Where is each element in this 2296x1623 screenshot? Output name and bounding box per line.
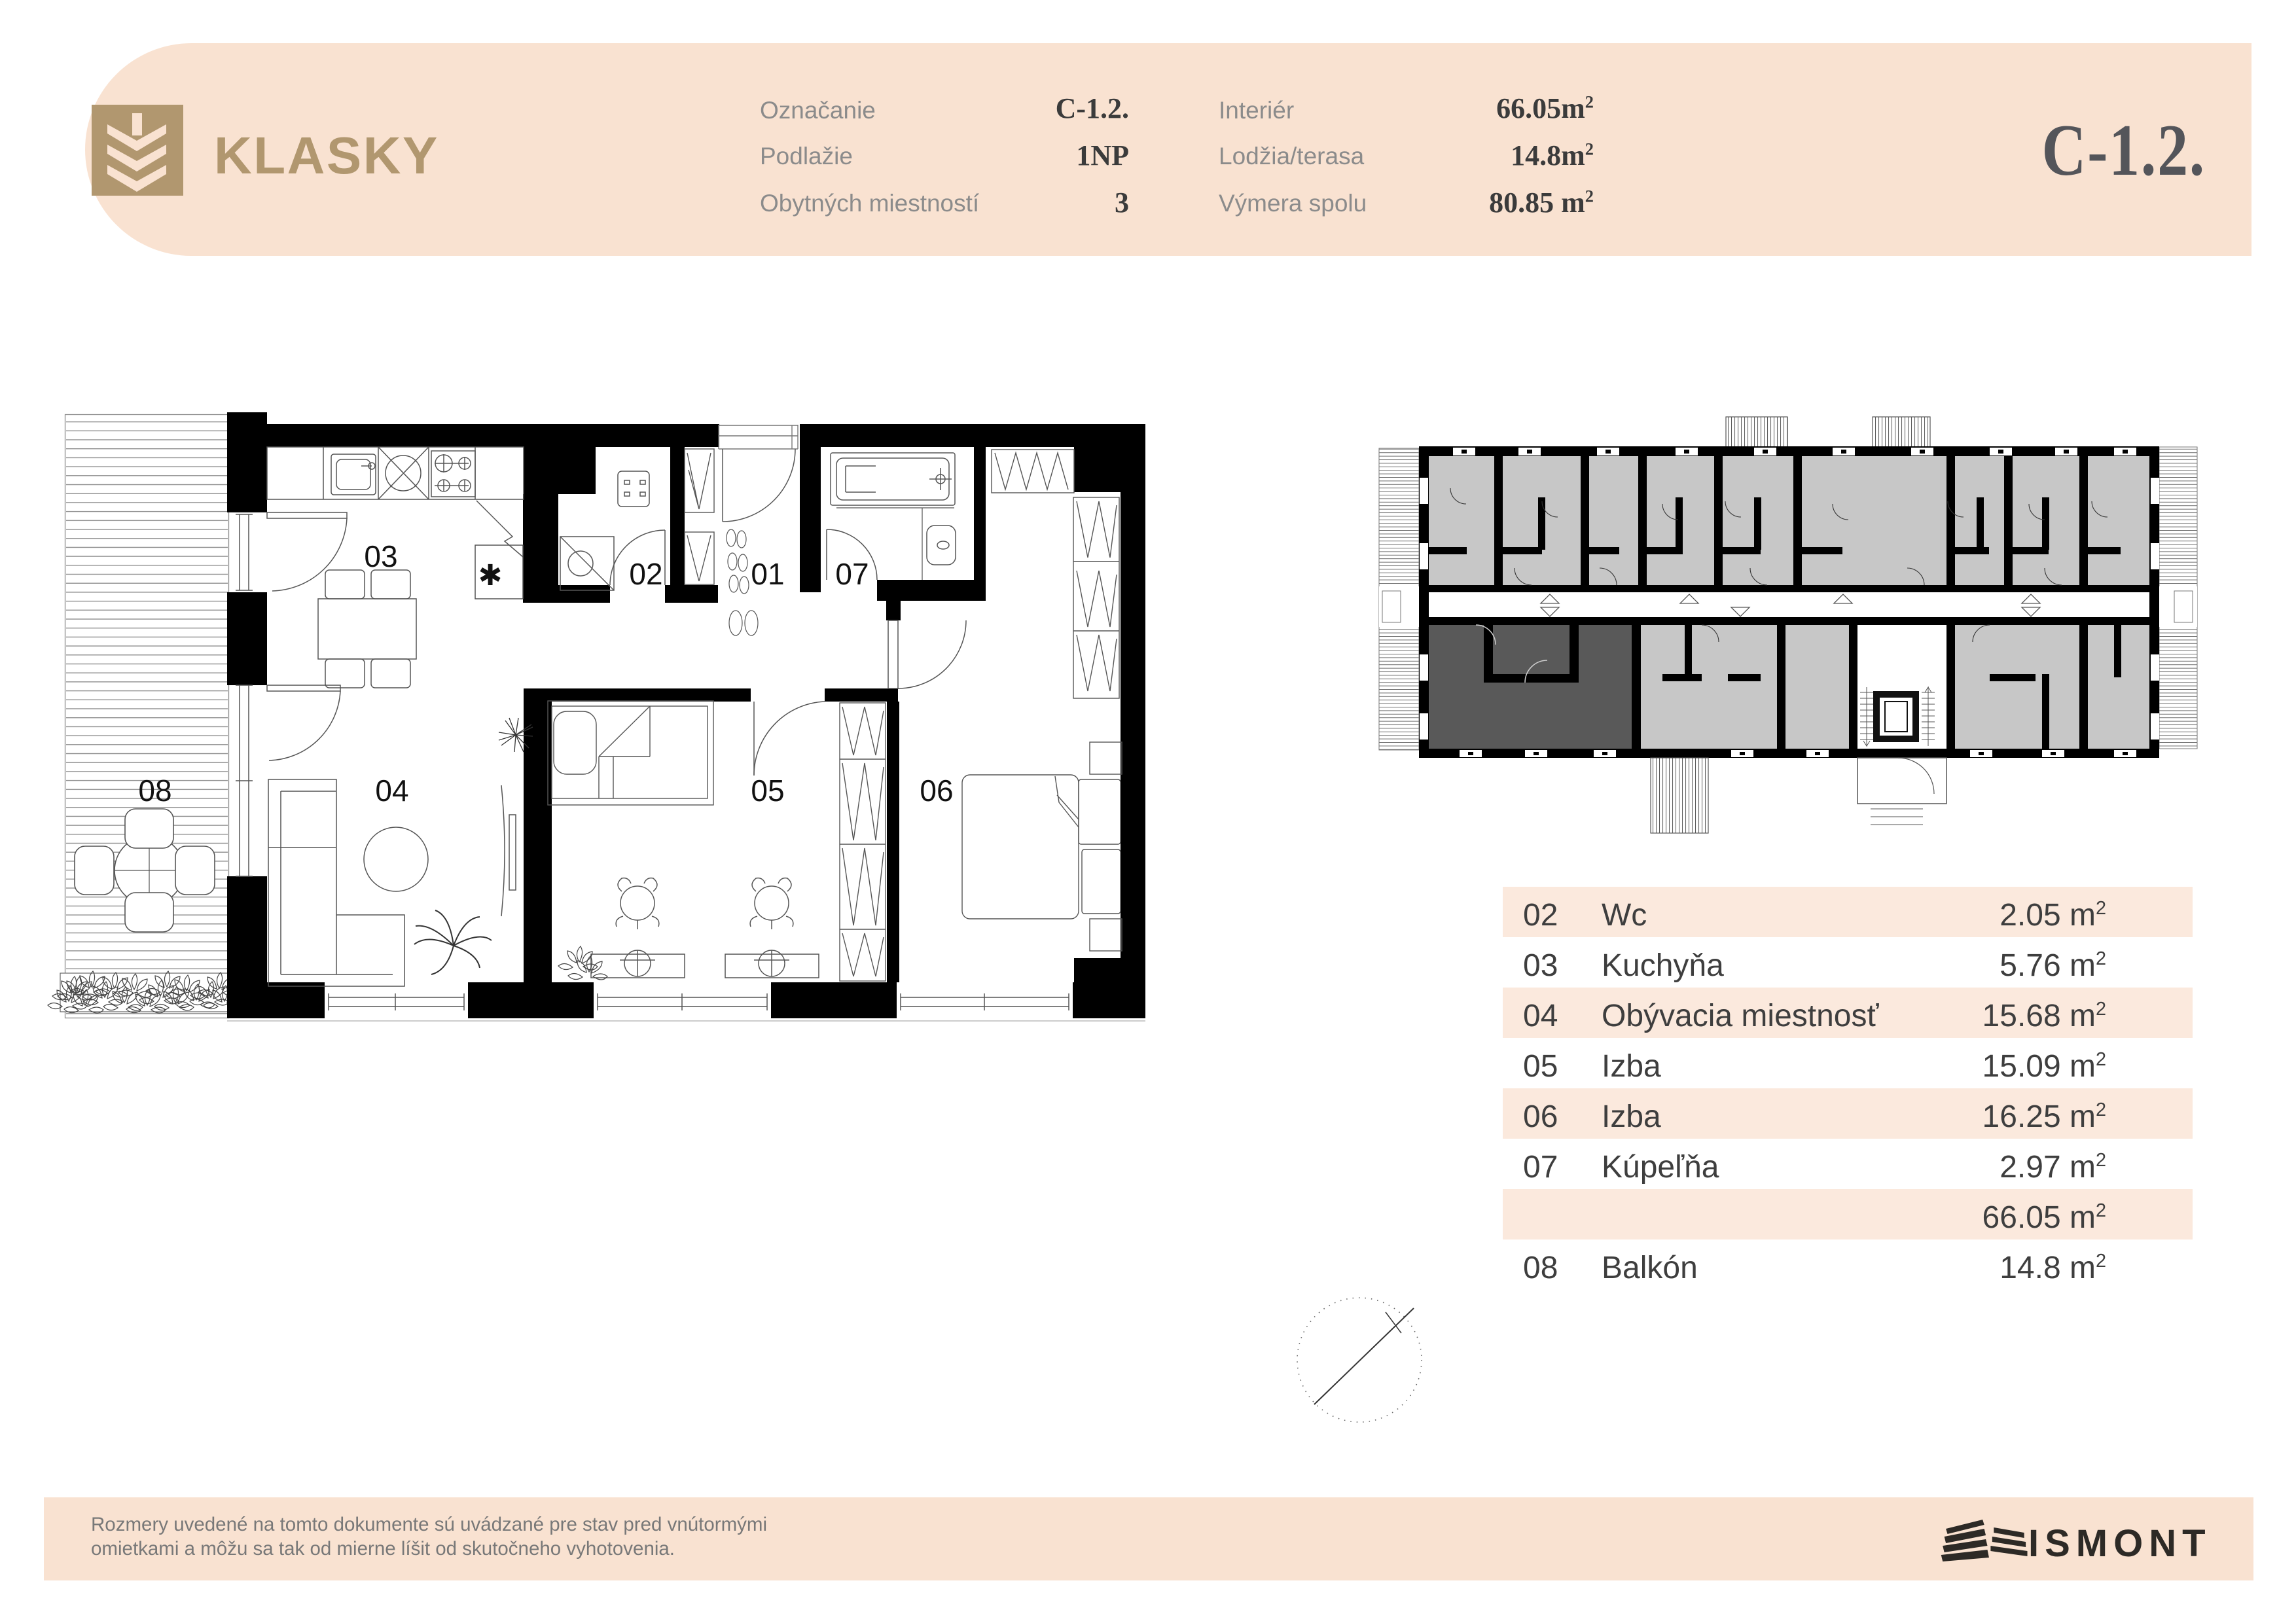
- svg-text:06: 06: [920, 774, 953, 808]
- svg-text:08: 08: [138, 774, 171, 808]
- svg-text:03: 03: [364, 539, 397, 573]
- svg-text:07: 07: [835, 557, 869, 591]
- svg-text:01: 01: [751, 557, 784, 591]
- svg-text:ISMONT: ISMONT: [2028, 1522, 2212, 1565]
- svg-text:✱: ✱: [478, 560, 503, 592]
- svg-text:04: 04: [375, 774, 408, 808]
- svg-text:02: 02: [629, 557, 662, 591]
- svg-text:05: 05: [751, 774, 784, 808]
